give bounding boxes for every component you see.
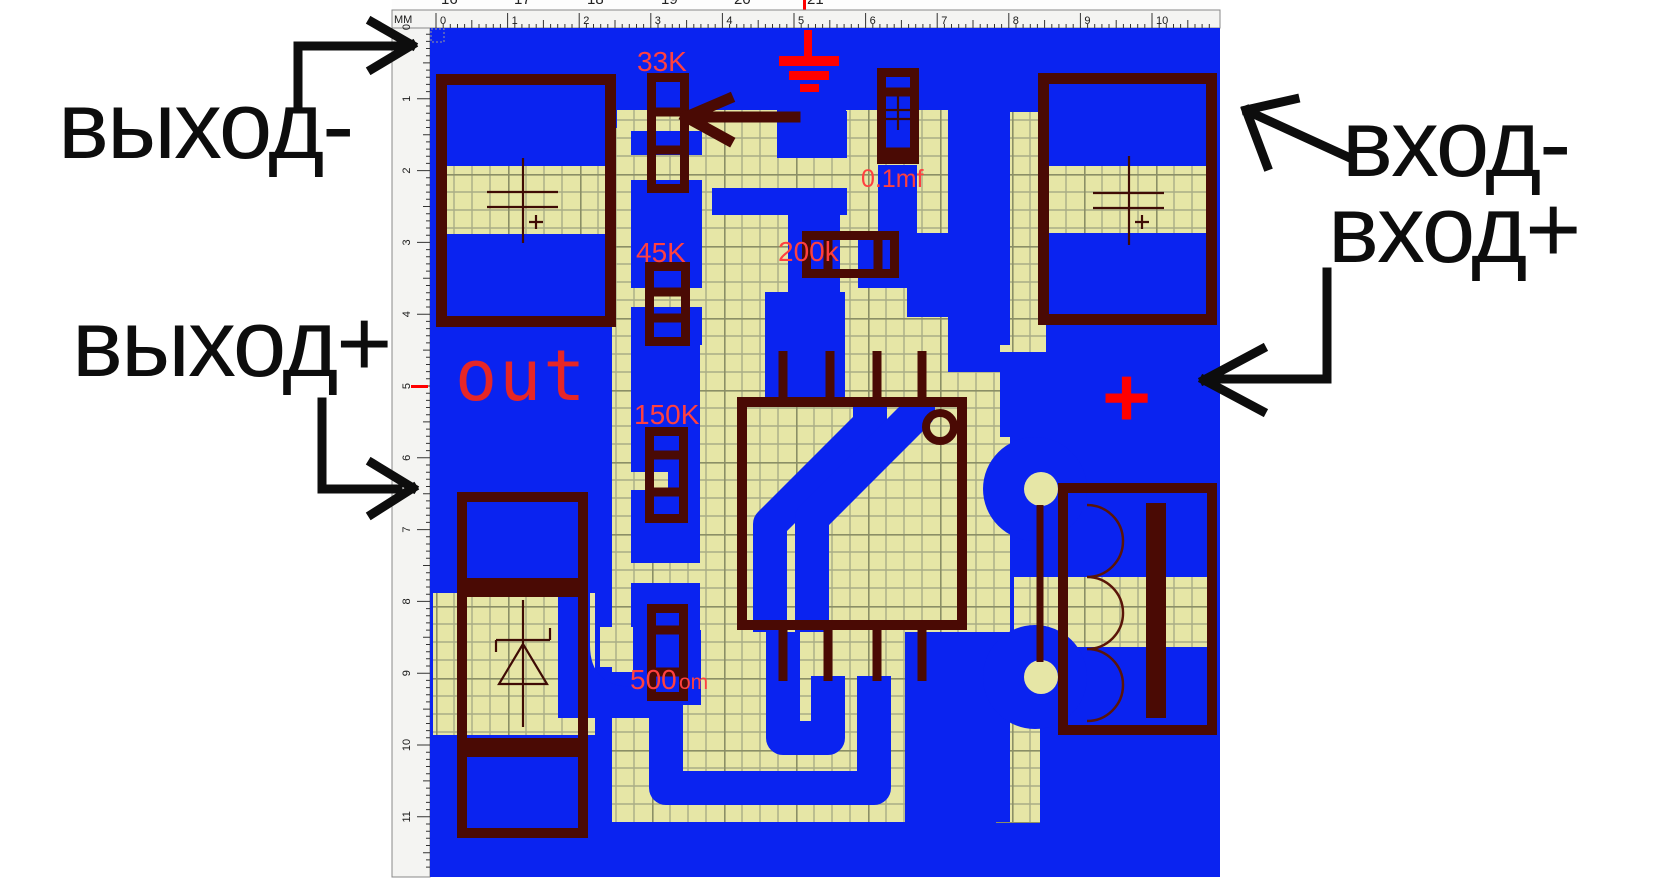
ruler-number: 8 (1013, 15, 1019, 27)
round-pad-top[interactable] (1024, 472, 1058, 506)
label-500-unit: om (679, 671, 708, 694)
ruler-number: 9 (1084, 15, 1090, 27)
pcb-canvas[interactable]: 33K 45K 150K 500 om 200k 0.1mf out + (430, 28, 1220, 877)
ruler-number: 1 (512, 15, 518, 27)
ruler-number: 1 (401, 96, 413, 102)
ruler-number: 2 (583, 15, 589, 27)
capacitor-body-bar (1146, 503, 1166, 718)
label-45k: 45K (636, 237, 686, 268)
ruler-number: 5 (798, 15, 804, 27)
annotation-output-plus: выход+ (72, 296, 390, 392)
arrow-to-input-plus (1204, 272, 1327, 411)
ruler-number: 10 (401, 739, 413, 751)
annotation-input-plus: вход+ (1328, 182, 1579, 278)
ruler-number: 9 (401, 670, 413, 676)
ruler-number: 10 (1156, 15, 1168, 27)
ruler-number: 7 (941, 15, 947, 27)
ruler-number: 0 (401, 24, 413, 30)
arrow-to-input-minus (1246, 99, 1348, 166)
label-out: out (455, 335, 587, 417)
ruler-number: 3 (655, 15, 661, 27)
ruler-number: 7 (401, 527, 413, 533)
ruler-number: 2 (401, 168, 413, 174)
label-33k: 33K (637, 46, 687, 77)
ruler-number: 11 (401, 811, 413, 822)
annotation-output-minus: выход- (58, 78, 352, 174)
ruler-number: 8 (401, 598, 413, 604)
ruler-number: 0 (440, 15, 446, 27)
label-200k: 200k (778, 236, 840, 267)
label-150k: 150K (634, 399, 700, 430)
ruler-number: 4 (401, 311, 413, 317)
label-plus: + (1102, 350, 1151, 444)
ruler-number: 6 (401, 455, 413, 461)
ruler-number: 3 (401, 239, 413, 245)
screenshot-stage: 161718192021 MM 012345678910012345678910… (0, 0, 1656, 889)
label-01mf: 0.1mf (861, 165, 924, 193)
ruler-cursor-mark-left (411, 385, 428, 388)
round-pad-bottom[interactable] (1024, 660, 1058, 694)
label-500-value: 500 (630, 664, 677, 695)
ruler-number: 6 (870, 15, 876, 27)
ruler-number: 4 (726, 15, 732, 27)
